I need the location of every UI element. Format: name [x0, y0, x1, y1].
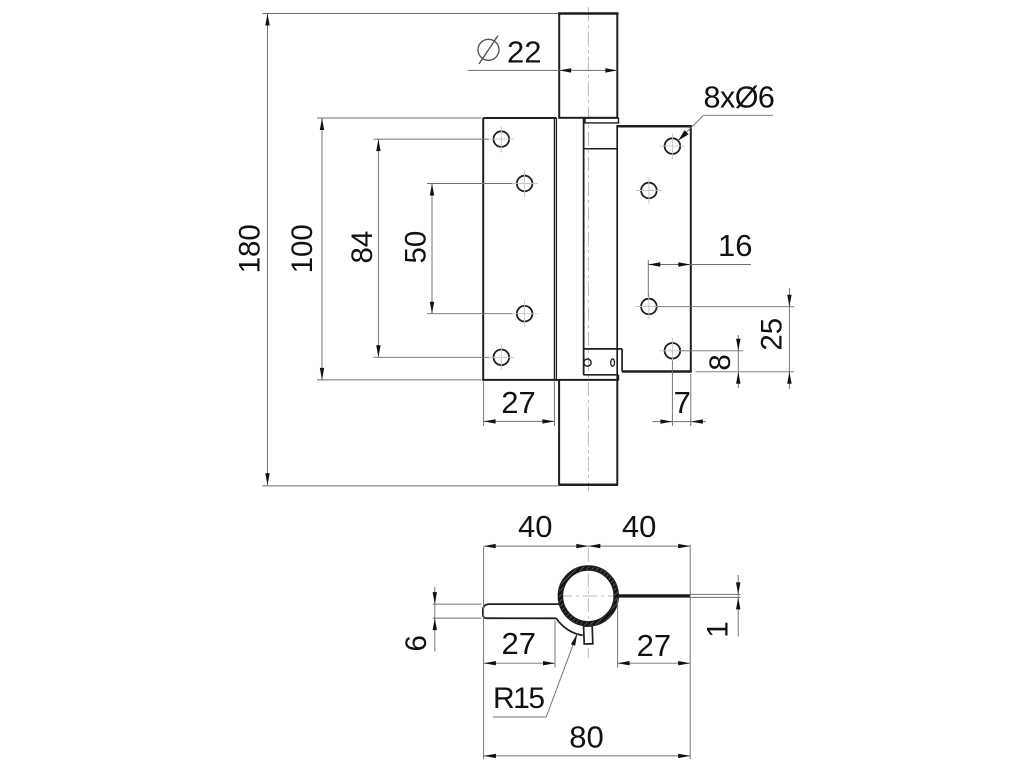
- svg-text:25: 25: [756, 318, 789, 351]
- svg-text:40: 40: [518, 509, 552, 544]
- svg-text:1: 1: [702, 621, 735, 637]
- svg-text:180: 180: [234, 224, 267, 273]
- svg-text:8xØ6: 8xØ6: [704, 81, 775, 115]
- svg-text:80: 80: [569, 720, 603, 755]
- svg-text:27: 27: [501, 385, 535, 420]
- svg-text:50: 50: [399, 231, 432, 264]
- svg-text:R15: R15: [493, 682, 544, 715]
- svg-text:22: 22: [507, 35, 541, 70]
- svg-text:27: 27: [501, 626, 535, 661]
- svg-text:100: 100: [286, 224, 319, 273]
- svg-text:84: 84: [346, 231, 379, 264]
- svg-text:7: 7: [674, 385, 691, 420]
- svg-text:8: 8: [704, 354, 737, 370]
- svg-text:16: 16: [718, 228, 752, 263]
- svg-text:40: 40: [622, 509, 656, 544]
- svg-text:27: 27: [637, 628, 671, 663]
- svg-text:6: 6: [400, 635, 433, 651]
